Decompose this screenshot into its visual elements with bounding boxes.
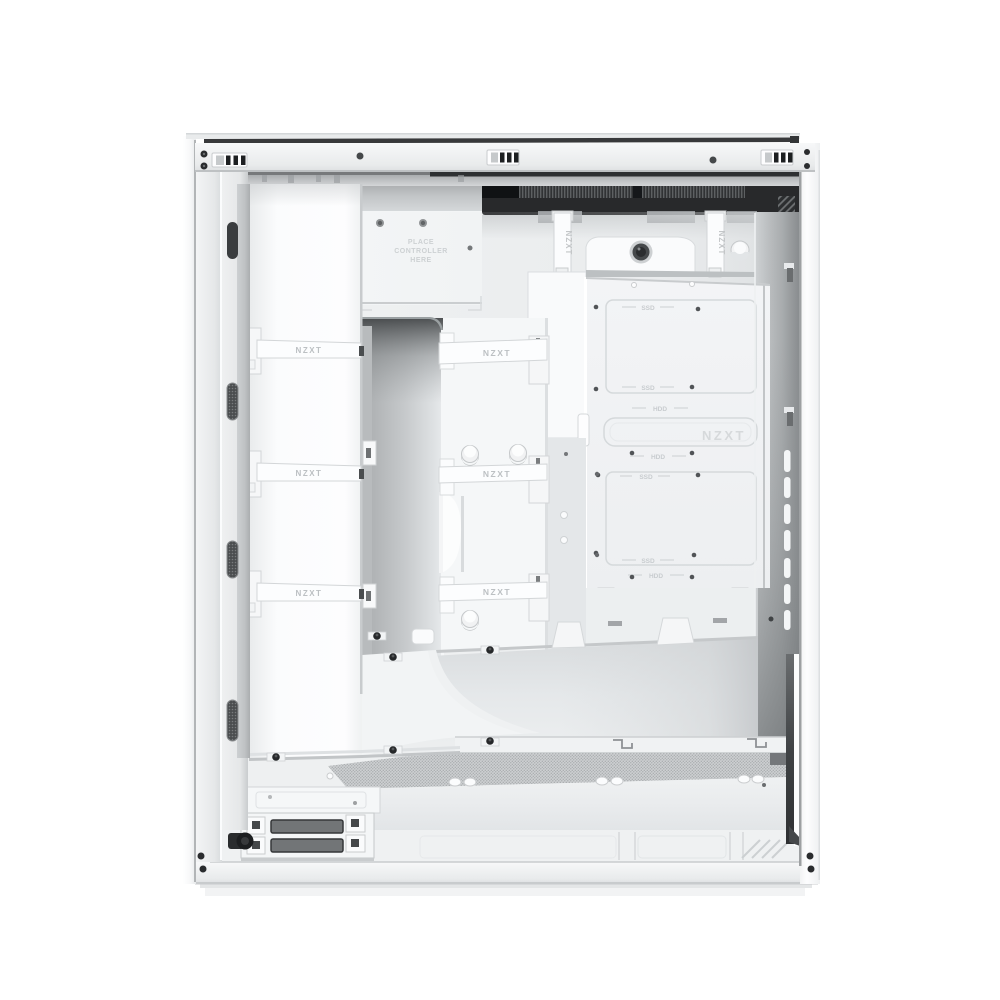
svg-text:NZXT: NZXT xyxy=(296,469,323,478)
svg-text:SSD: SSD xyxy=(641,385,655,392)
svg-text:NZXT: NZXT xyxy=(702,428,746,443)
svg-text:HDD: HDD xyxy=(649,573,663,580)
svg-text:SSD: SSD xyxy=(641,305,655,312)
svg-text:NZXT: NZXT xyxy=(296,346,323,355)
svg-text:HDD: HDD xyxy=(653,406,667,413)
svg-text:NZXT: NZXT xyxy=(717,231,726,256)
svg-text:SSD: SSD xyxy=(639,474,653,481)
svg-text:NZXT: NZXT xyxy=(564,231,573,256)
svg-text:SSD: SSD xyxy=(641,558,655,565)
svg-text:HDD: HDD xyxy=(651,454,665,461)
svg-text:NZXT: NZXT xyxy=(483,348,511,358)
svg-text:NZXT: NZXT xyxy=(296,589,323,598)
svg-text:NZXT: NZXT xyxy=(483,469,511,479)
svg-text:NZXT: NZXT xyxy=(483,587,511,597)
